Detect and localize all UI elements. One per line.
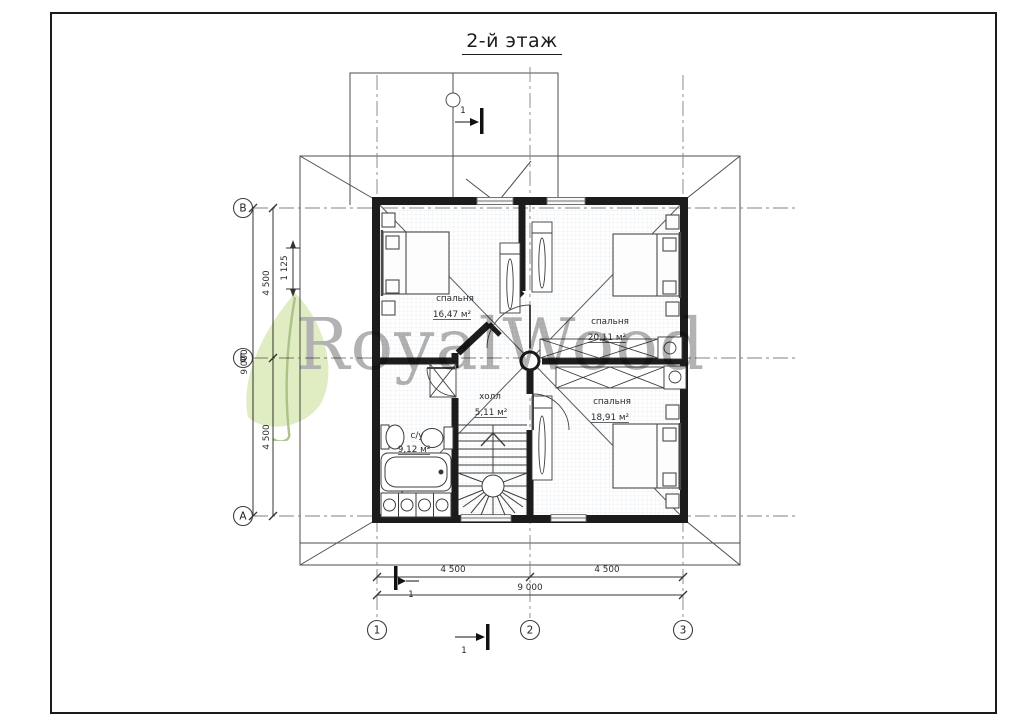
- dim-left-total: 9 000: [240, 349, 250, 375]
- room-name-bedroom-1: спальня: [436, 294, 474, 304]
- room-name-bedroom-3: спальня: [593, 397, 631, 407]
- toilet-icon: [444, 427, 453, 449]
- room-area-bedroom-3: 18,91 м²: [591, 413, 629, 423]
- floor-plan-sheet: 2-й этаж: [0, 0, 1024, 723]
- room-name-hall: холл: [479, 392, 501, 402]
- room-area-bedroom-1: 16,47 м²: [433, 310, 471, 320]
- section-label: 1: [408, 590, 413, 600]
- room-name-bathroom: с/у: [410, 431, 423, 441]
- room-area-hall: 5,11 м²: [475, 408, 508, 418]
- room-area-bathroom: 9,12 м²: [398, 445, 431, 455]
- section-label: 1: [461, 646, 466, 656]
- page-title: 2-й этаж: [0, 30, 1024, 55]
- room-area-bedroom-2: 20,11 м²: [588, 333, 626, 343]
- section-mark-bottom: 1: [455, 624, 490, 656]
- dim-bottom-total: 9 000: [517, 583, 543, 593]
- axis-label-a: А: [239, 511, 247, 523]
- floor-plan-drawing: В Б А 1 2 3 9 000 4 500 4 500 1 125: [0, 0, 1024, 723]
- axis-label-2: 2: [527, 625, 534, 637]
- dim-left-upper: 4 500: [262, 270, 272, 296]
- section-label: 1: [460, 106, 465, 116]
- page-title-text: 2-й этаж: [462, 30, 562, 55]
- axis-label-v: В: [239, 203, 246, 215]
- section-mark-top: 1: [455, 106, 484, 134]
- axis-label-3: 3: [680, 625, 687, 637]
- column: [521, 352, 539, 370]
- dim-bottom-left: 4 500: [440, 565, 466, 575]
- axis-label-1: 1: [374, 625, 381, 637]
- dim-bottom-right: 4 500: [594, 565, 620, 575]
- dim-left-lower: 4 500: [262, 424, 272, 450]
- left-dimensions: [249, 204, 300, 520]
- room-name-bedroom-2: спальня: [591, 317, 629, 327]
- dim-left-offset: 1 125: [280, 255, 290, 280]
